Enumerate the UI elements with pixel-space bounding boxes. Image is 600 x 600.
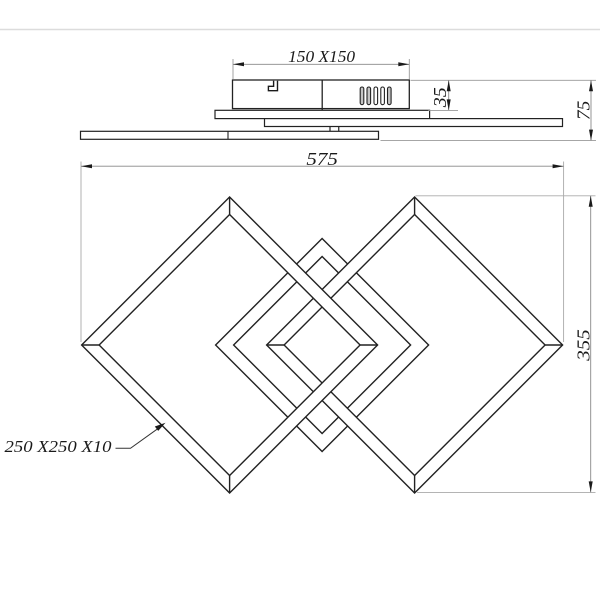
svg-text:75: 75 [574,101,594,121]
svg-text:355: 355 [574,329,594,362]
svg-text:150 X150: 150 X150 [288,47,356,66]
svg-text:250 X250 X10: 250 X250 X10 [5,437,113,456]
svg-text:575: 575 [306,149,338,169]
svg-text:35: 35 [430,87,450,108]
